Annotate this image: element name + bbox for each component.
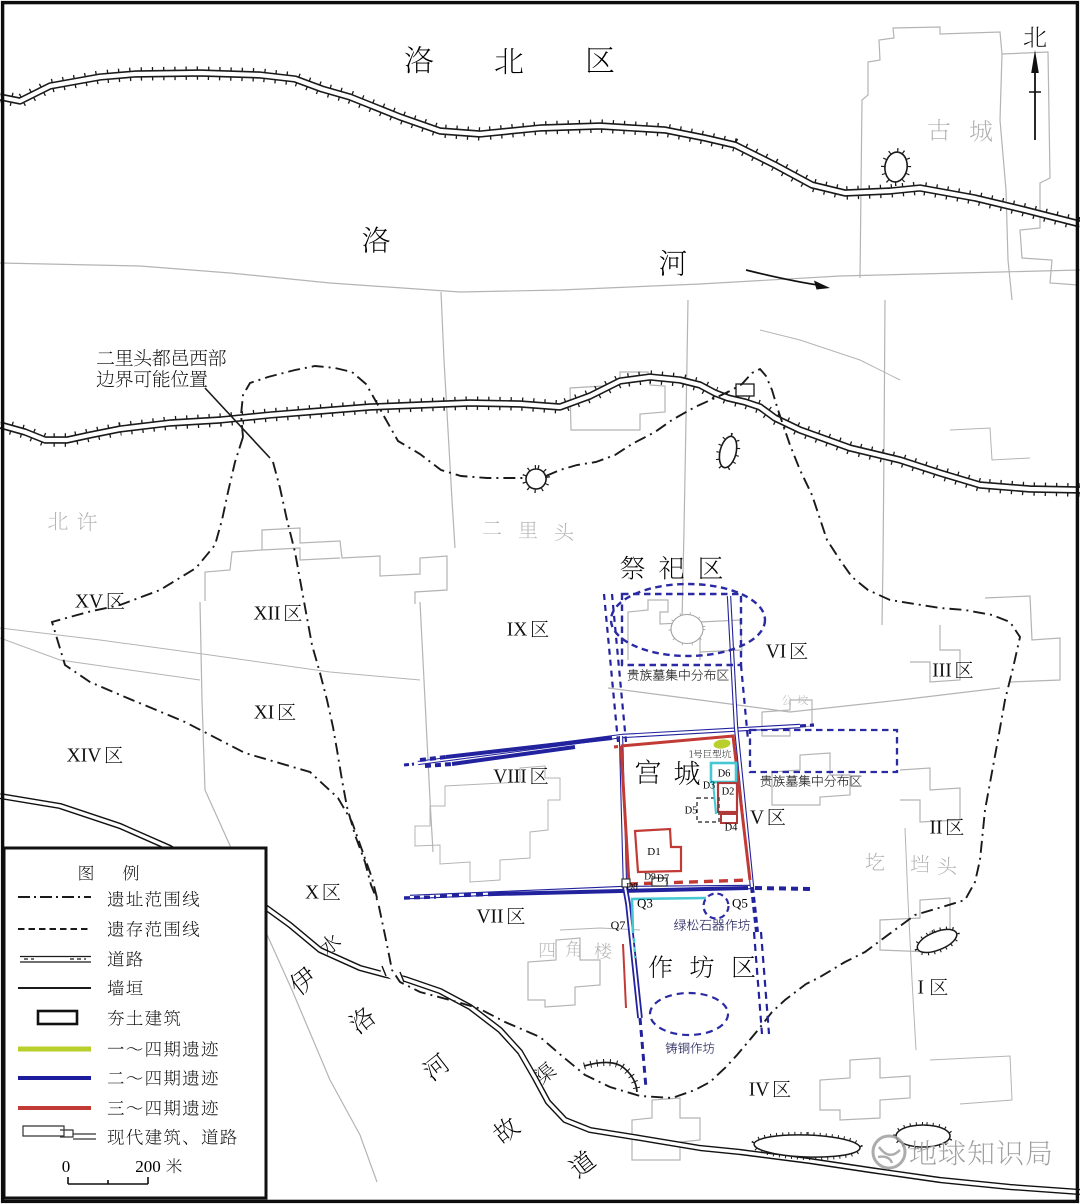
svg-text:D6: D6 (718, 769, 731, 780)
svg-text:XV: XV (75, 592, 103, 613)
svg-text:D2: D2 (722, 787, 735, 798)
svg-text:Q5: Q5 (732, 896, 748, 911)
svg-text:IX: IX (507, 620, 528, 641)
svg-text:IV: IV (749, 1080, 770, 1101)
svg-text:VIII: VIII (493, 767, 527, 788)
svg-text:III: III (932, 661, 951, 682)
svg-text:D5: D5 (685, 806, 698, 817)
svg-text:XII: XII (253, 604, 280, 625)
svg-text:VII: VII (476, 907, 503, 928)
svg-text:D4: D4 (725, 823, 739, 834)
svg-text:D1: D1 (647, 846, 660, 858)
svg-text:II: II (930, 818, 943, 839)
svg-text:V: V (750, 808, 764, 829)
svg-text:XIV: XIV (67, 746, 102, 767)
svg-text:D8: D8 (626, 882, 638, 892)
svg-text:200: 200 (135, 1157, 161, 1176)
svg-text:Q3: Q3 (637, 896, 653, 911)
svg-text:Q7: Q7 (611, 918, 626, 932)
svg-text:0: 0 (62, 1157, 71, 1176)
svg-text:D9: D9 (644, 872, 656, 882)
svg-text:X: X (305, 883, 319, 904)
svg-text:VI: VI (766, 642, 787, 663)
svg-text:D3: D3 (703, 781, 715, 792)
svg-text:D7: D7 (657, 874, 669, 885)
svg-text:I: I (918, 978, 925, 999)
svg-text:XI: XI (254, 703, 275, 724)
